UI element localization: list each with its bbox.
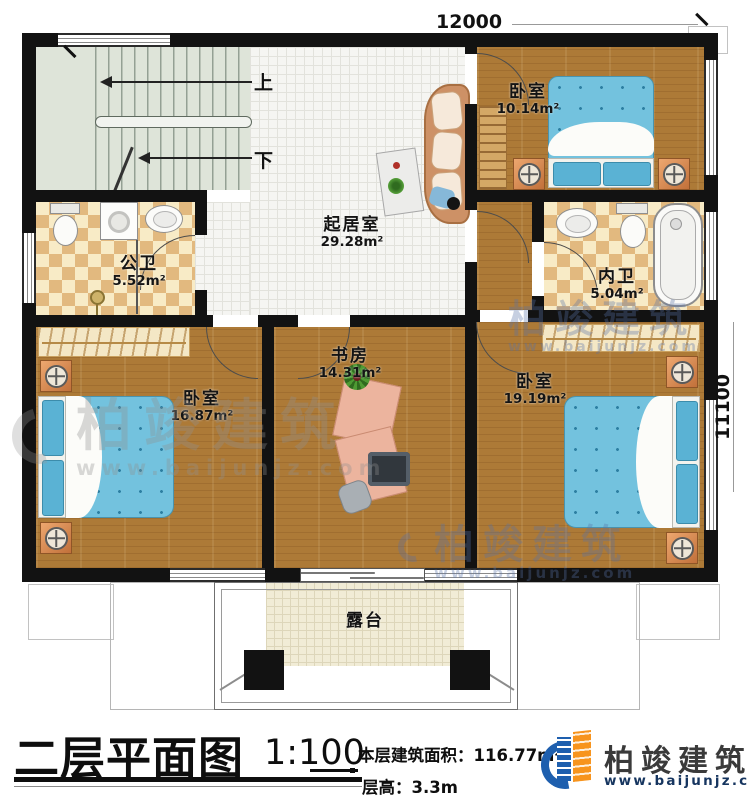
room-label-study: 书房 14.31m² xyxy=(290,347,410,381)
computer-monitor xyxy=(368,452,410,486)
nightstand xyxy=(40,360,72,392)
room-label-bedroom-top: 卧室 10.14m² xyxy=(468,83,588,117)
wall-inner-bath-bottom xyxy=(528,310,718,322)
pillow xyxy=(603,162,651,186)
room-name: 内卫 xyxy=(557,268,677,287)
stair-down-label: 下 xyxy=(254,146,273,173)
title-underline-thick xyxy=(14,777,362,782)
window xyxy=(704,60,718,175)
window xyxy=(170,568,265,582)
window xyxy=(58,33,170,47)
wall-mid-horizontal xyxy=(258,315,298,327)
bed-sheet xyxy=(636,396,676,528)
company-logo-icon xyxy=(541,729,599,795)
sink-basin xyxy=(565,215,591,233)
exterior-outline-box xyxy=(636,584,720,640)
toilet-tank xyxy=(50,203,80,214)
stair-down-arrow-line xyxy=(150,157,252,159)
window xyxy=(704,212,718,300)
room-name: 卧室 xyxy=(142,390,262,409)
floor-height-text: 层高：3.3m xyxy=(362,774,458,798)
room-area: 5.52m² xyxy=(79,274,199,289)
wall-stair-bottom xyxy=(36,190,207,202)
room-name: 卧室 xyxy=(468,83,588,102)
dimension-line xyxy=(512,24,698,25)
wall-mid-horizontal xyxy=(22,315,213,327)
room-name: 书房 xyxy=(290,347,410,366)
stair-railing xyxy=(95,116,252,128)
room-name: 公卫 xyxy=(79,255,199,274)
room-area: 29.28m² xyxy=(292,235,412,250)
logo-building-blue xyxy=(557,737,571,781)
table-item xyxy=(393,162,400,169)
terrace-pillar xyxy=(244,650,284,690)
toilet-bowl xyxy=(620,215,646,248)
room-label-bedroom-right: 卧室 19.19m² xyxy=(475,373,595,407)
room-area: 10.14m² xyxy=(468,102,588,117)
toilet-tank xyxy=(616,203,648,214)
wall-mid-horizontal xyxy=(350,315,477,327)
room-label-terrace: 露台 xyxy=(305,612,425,631)
plan-scale: 1:100 xyxy=(264,733,365,773)
room-name: 露台 xyxy=(305,612,425,631)
stair-up-label: 上 xyxy=(254,68,273,95)
plant-icon xyxy=(388,178,404,194)
logo-building-orange xyxy=(573,730,591,782)
wall-study-bedroom-right xyxy=(465,327,477,568)
closet xyxy=(542,324,700,352)
pillow xyxy=(42,400,64,456)
window xyxy=(22,233,36,303)
floor-drain xyxy=(90,290,105,305)
wall-living-east xyxy=(465,47,477,54)
washer-drum xyxy=(108,211,130,233)
window xyxy=(425,568,517,582)
room-area: 19.19m² xyxy=(475,392,595,407)
company-url: www.baijunjz.com xyxy=(604,773,750,789)
closet xyxy=(38,327,190,357)
floor-plan-page: 上 下 xyxy=(0,0,750,803)
nightstand xyxy=(658,158,690,190)
floor-area-text: 本层建筑面积：116.77m² xyxy=(358,742,562,766)
room-area: 5.04m² xyxy=(557,287,677,302)
sofa-cushion xyxy=(430,91,464,132)
terrace-sliding-door xyxy=(300,568,425,582)
nightstand xyxy=(40,522,72,554)
dimension-right: 11100 xyxy=(712,378,734,440)
wardrobe xyxy=(479,106,507,190)
arrow-head-icon xyxy=(100,76,112,88)
bathtub-drain xyxy=(670,218,682,230)
room-label-living: 起居室 29.28m² xyxy=(292,216,412,250)
nightstand xyxy=(666,532,698,564)
pillow xyxy=(676,464,698,524)
terrace-pillar xyxy=(450,650,490,690)
wall-inner-bath xyxy=(532,202,544,242)
arrow-head-icon xyxy=(138,152,150,164)
pillow xyxy=(553,162,601,186)
exterior-outline-box xyxy=(28,584,114,640)
nightstand xyxy=(513,158,545,190)
sofa-cushion xyxy=(430,131,463,171)
wall-bedroom-top-bottom xyxy=(465,190,718,202)
wall-outer-left xyxy=(22,33,36,582)
room-name: 卧室 xyxy=(475,373,595,392)
pillow xyxy=(42,460,64,516)
wall-living-east xyxy=(465,262,477,315)
dimension-top: 12000 xyxy=(436,11,502,33)
title-underline-thin xyxy=(14,786,362,787)
sink-basin xyxy=(153,211,177,228)
divider-line xyxy=(310,769,358,772)
wall-bedroom-left-study xyxy=(262,327,274,568)
nightstand xyxy=(666,356,698,388)
room-label-public-bath: 公卫 5.52m² xyxy=(79,255,199,289)
stair-up-arrow-line xyxy=(112,81,252,83)
room-label-inner-bath: 内卫 5.04m² xyxy=(557,268,677,302)
wall-inner-bath-bottom xyxy=(465,310,480,322)
wall-public-bath xyxy=(195,290,207,317)
room-label-bedroom-left: 卧室 16.87m² xyxy=(142,390,262,424)
pillow xyxy=(676,401,698,461)
toilet-bowl xyxy=(53,215,78,246)
person-head xyxy=(447,197,460,210)
room-name: 起居室 xyxy=(292,216,412,235)
room-area: 14.31m² xyxy=(290,366,410,381)
room-area: 16.87m² xyxy=(142,409,262,424)
wall-public-bath xyxy=(195,202,207,235)
